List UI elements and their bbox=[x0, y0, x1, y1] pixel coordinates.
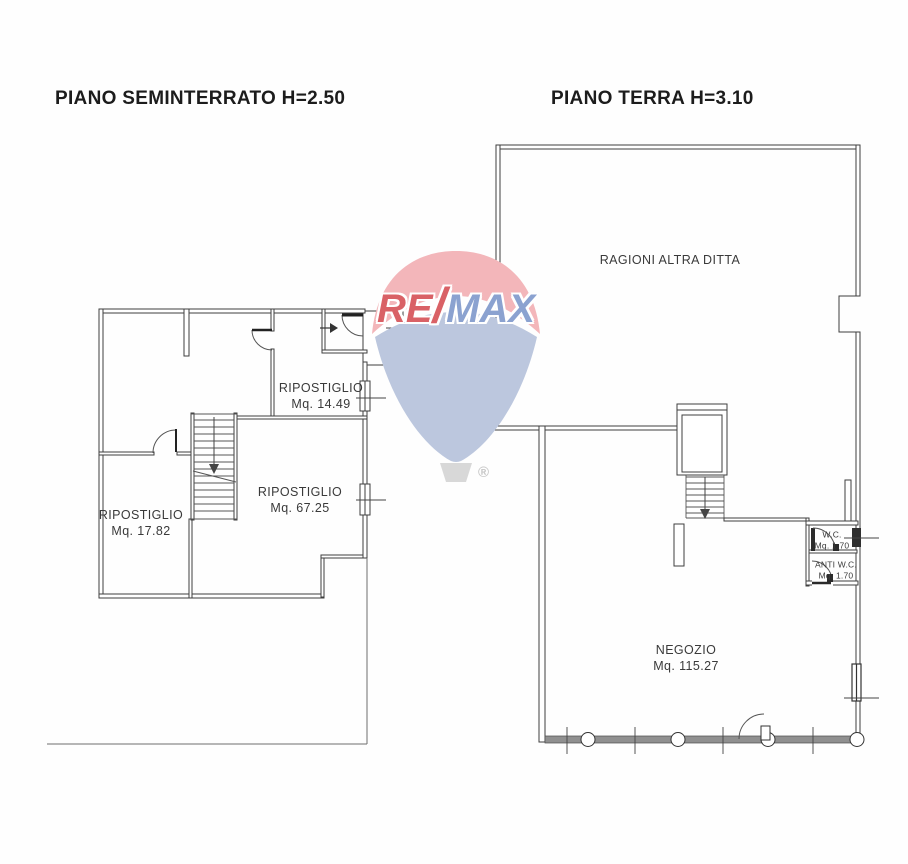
storefront bbox=[545, 714, 864, 754]
negozio-side-window bbox=[844, 664, 879, 701]
right-wall-recess bbox=[839, 296, 858, 332]
floor-plan-page: PIANO SEMINTERRATO H=2.50 PIANO TERRA H=… bbox=[0, 0, 908, 864]
remax-wordmark: RE/MAX bbox=[366, 278, 546, 334]
room-label-ripostiglio-1782: RIPOSTIGLIO Mq. 17.82 bbox=[99, 507, 183, 539]
column bbox=[581, 733, 595, 747]
registered-trademark-symbol: ® bbox=[478, 464, 489, 481]
balloon-basket bbox=[440, 463, 472, 482]
remax-watermark: RE/MAX ® bbox=[366, 248, 546, 488]
room-label-wc: W.C. Mq. 1.70 bbox=[815, 530, 850, 551]
wc-window bbox=[852, 528, 861, 547]
column bbox=[671, 733, 685, 747]
stair-down-arrow bbox=[700, 509, 710, 519]
room-label-ragioni-altra-ditta: RAGIONI ALTRA DITTA bbox=[600, 252, 741, 268]
column bbox=[850, 733, 864, 747]
room-label-ripostiglio-6725: RIPOSTIGLIO Mq. 67.25 bbox=[258, 484, 342, 516]
duct bbox=[845, 480, 851, 521]
room-label-negozio: NEGOZIO Mq. 115.27 bbox=[653, 642, 719, 674]
courtyard-boundary bbox=[47, 558, 367, 744]
room-label-ripostiglio-1449: RIPOSTIGLIO Mq. 14.49 bbox=[279, 380, 363, 412]
basement-staircase bbox=[191, 413, 237, 520]
pillar bbox=[674, 524, 684, 566]
ground-staircase bbox=[674, 404, 727, 566]
room-label-anti-wc: ANTI W.C. Mq. 1.70 bbox=[815, 560, 857, 581]
shop-entrance-door bbox=[739, 714, 764, 739]
basement-plan-walls bbox=[99, 309, 403, 598]
